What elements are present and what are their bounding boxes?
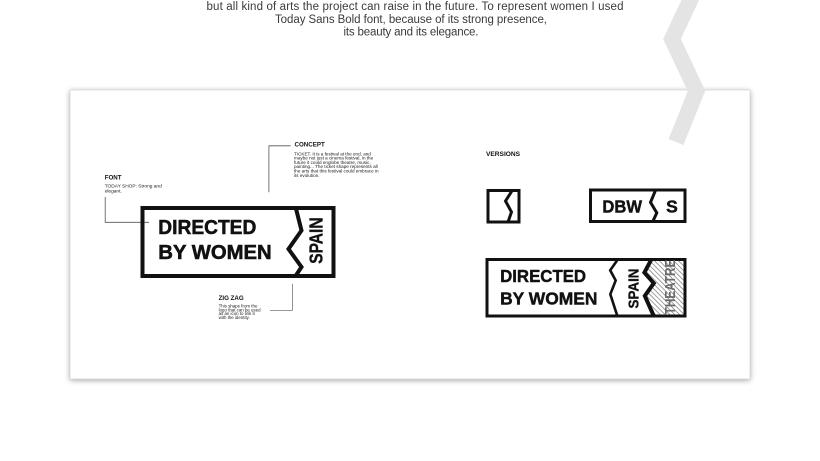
svg-text:CONCEPT: CONCEPT (295, 141, 325, 148)
svg-text:DIRECTED: DIRECTED (158, 217, 256, 239)
svg-text:with the identity.: with the identity. (219, 315, 250, 320)
svg-text:THEATRE: THEATRE (663, 260, 679, 315)
svg-text:but all kind of arts the proje: but all kind of arts the project can rai… (207, 1, 624, 13)
svg-text:DBW: DBW (602, 197, 642, 217)
svg-text:Today Sans Bold font, because: Today Sans Bold font, because of its str… (275, 14, 547, 26)
svg-text:SPAIN: SPAIN (306, 217, 327, 263)
svg-text:BY WOMEN: BY WOMEN (158, 242, 271, 264)
svg-text:its evolution.: its evolution. (294, 173, 320, 178)
svg-text:VERSIONS: VERSIONS (486, 151, 521, 158)
svg-text:elegant.: elegant. (105, 188, 122, 194)
svg-text:FONT: FONT (105, 175, 122, 182)
svg-text:S: S (666, 197, 678, 217)
svg-text:DIRECTED: DIRECTED (500, 266, 586, 286)
svg-text:BY WOMEN: BY WOMEN (500, 289, 597, 309)
svg-text:SPAIN: SPAIN (626, 269, 642, 309)
svg-text:ZIG ZAG: ZIG ZAG (219, 295, 244, 302)
svg-text:its beauty and its elegance.: its beauty and its elegance. (344, 27, 479, 39)
